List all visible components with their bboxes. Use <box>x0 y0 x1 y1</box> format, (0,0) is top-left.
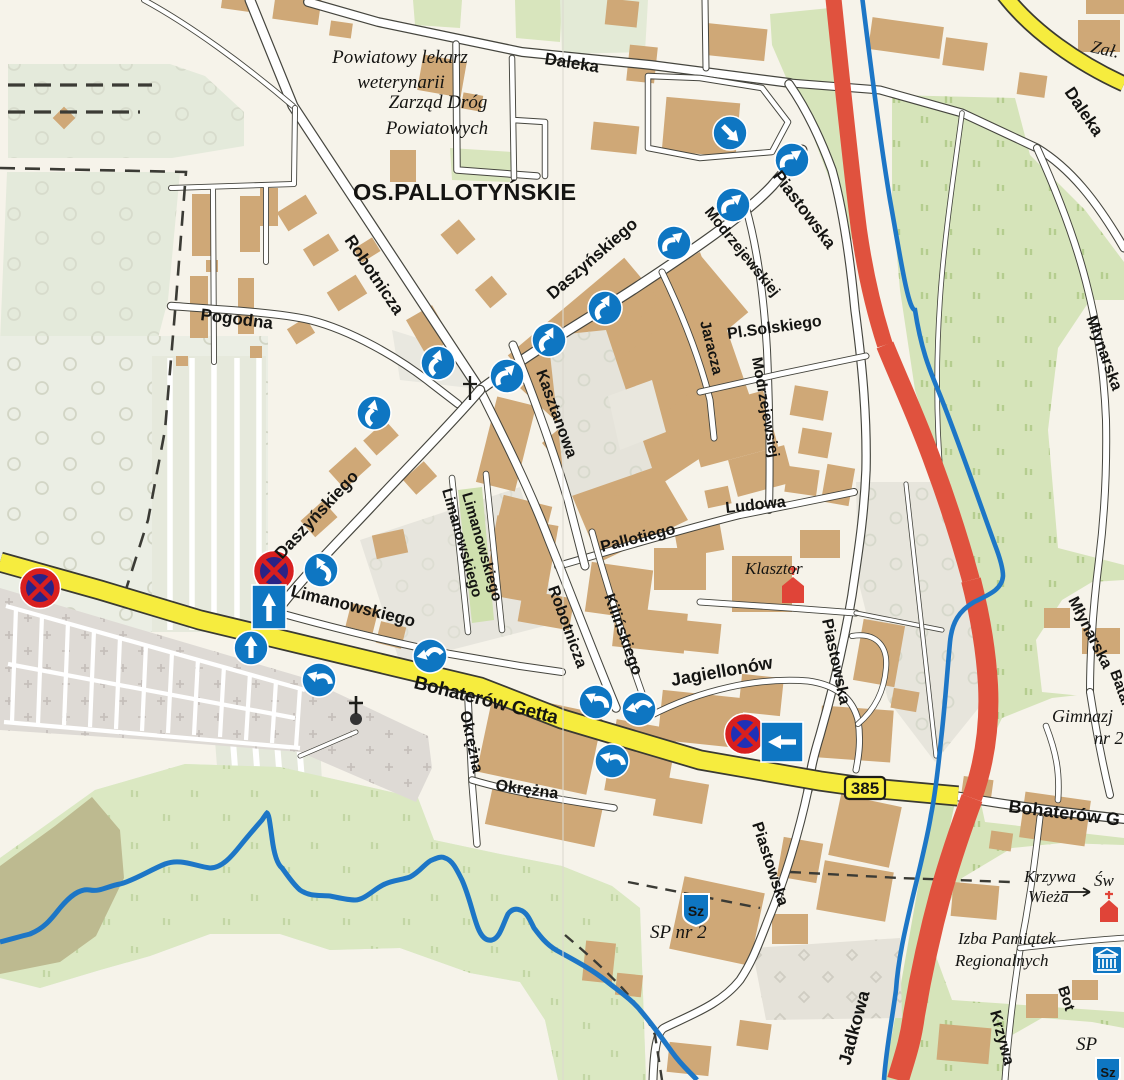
svg-text:Wieża: Wieża <box>1028 887 1069 906</box>
svg-text:SP nr 2: SP nr 2 <box>650 922 707 943</box>
svg-text:Św: Św <box>1094 871 1115 890</box>
svg-text:nr 2: nr 2 <box>1094 728 1124 748</box>
svg-text:Zarząd Dróg: Zarząd Dróg <box>389 92 488 113</box>
svg-text:Regionalnych: Regionalnych <box>954 951 1048 970</box>
svg-text:SP: SP <box>1076 1034 1098 1055</box>
svg-text:Izba Pamiątek: Izba Pamiątek <box>957 929 1056 948</box>
svg-text:weterynarii: weterynarii <box>357 72 445 93</box>
svg-text:385: 385 <box>851 779 879 798</box>
svg-text:Sz: Sz <box>1100 1065 1116 1080</box>
svg-text:Powiatowych: Powiatowych <box>385 118 488 139</box>
svg-text:Sz: Sz <box>688 903 704 919</box>
svg-text:OS.PALLOTYŃSKIE: OS.PALLOTYŃSKIE <box>353 178 576 205</box>
svg-text:Powiatowy lekarz: Powiatowy lekarz <box>331 47 468 68</box>
svg-text:Krzywa: Krzywa <box>1023 867 1076 886</box>
svg-text:Klasztor: Klasztor <box>744 559 803 578</box>
svg-text:Gimnazj: Gimnazj <box>1052 706 1113 726</box>
